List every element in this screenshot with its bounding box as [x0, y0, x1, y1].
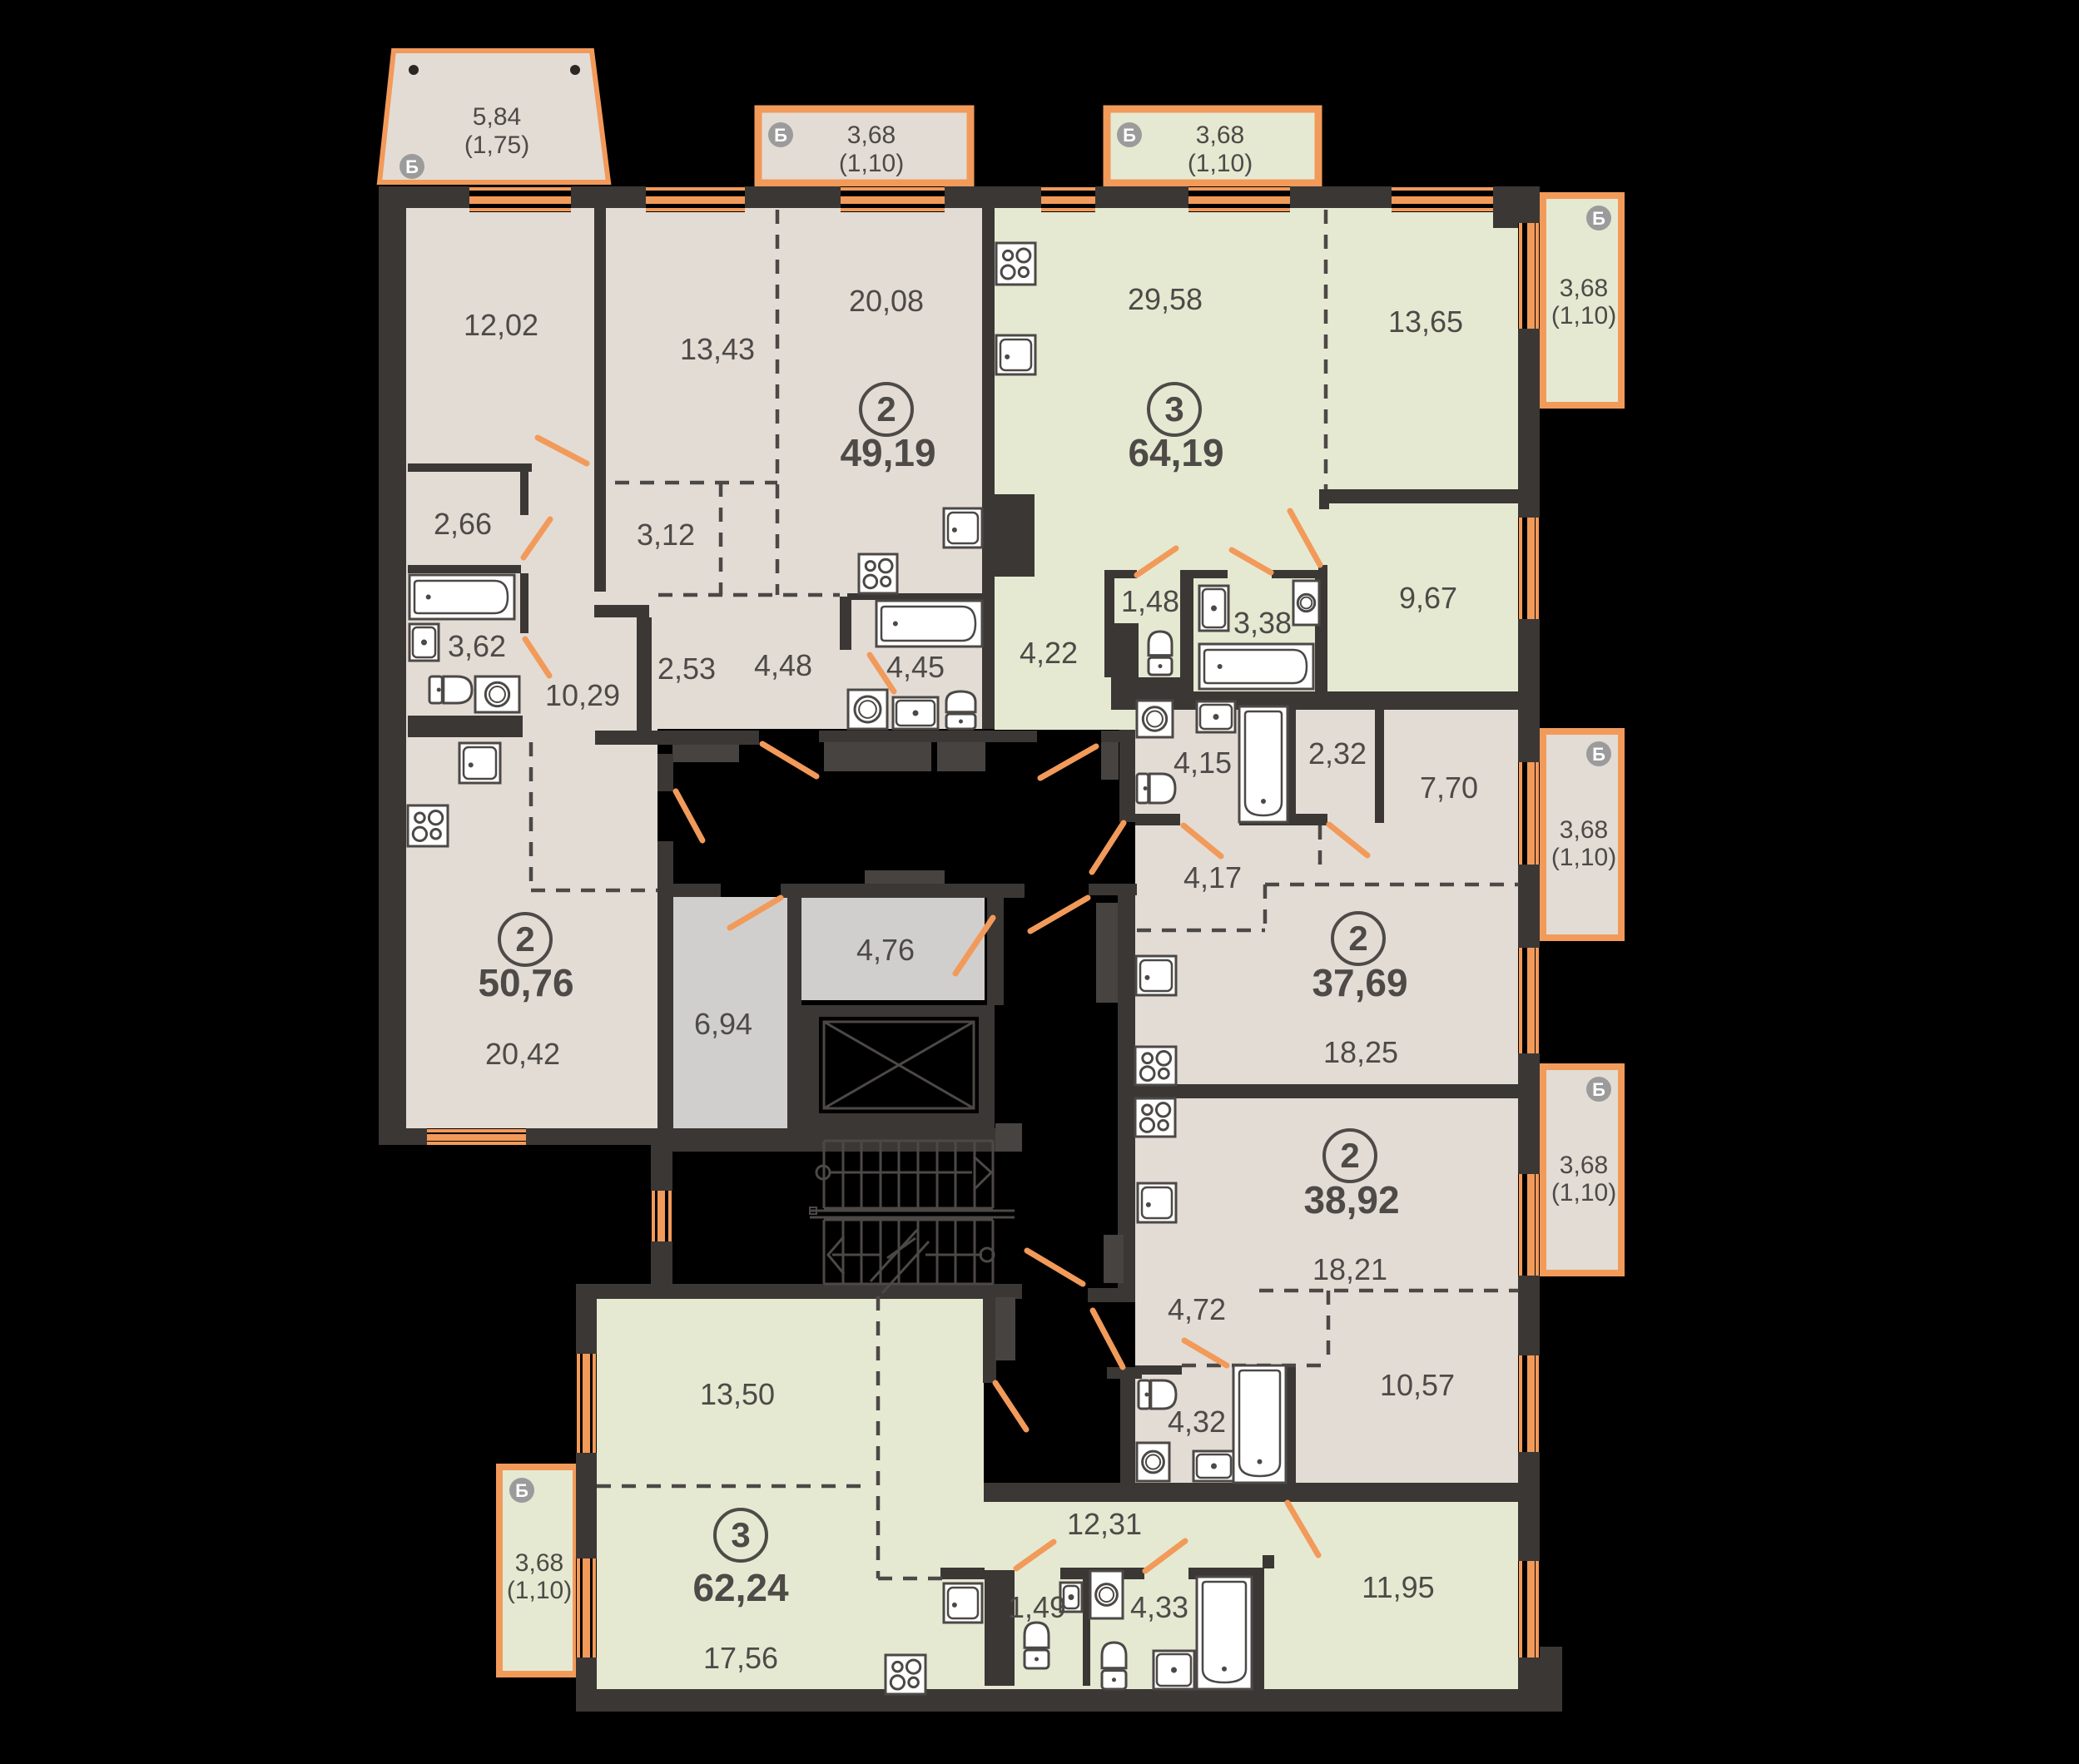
- svg-text:10,29: 10,29: [545, 678, 620, 712]
- svg-text:13,50: 13,50: [700, 1377, 775, 1411]
- svg-text:2: 2: [515, 919, 534, 959]
- svg-text:4,32: 4,32: [1168, 1405, 1226, 1439]
- svg-text:(1,10): (1,10): [839, 150, 904, 177]
- svg-text:2,66: 2,66: [434, 507, 492, 541]
- svg-text:18,25: 18,25: [1323, 1035, 1398, 1069]
- svg-text:1,48: 1,48: [1121, 584, 1179, 618]
- svg-text:37,69: 37,69: [1312, 961, 1407, 1004]
- svg-text:4,76: 4,76: [856, 933, 915, 967]
- svg-text:4,45: 4,45: [886, 650, 945, 684]
- svg-text:3,68: 3,68: [1560, 816, 1608, 844]
- svg-text:7,70: 7,70: [1420, 771, 1478, 805]
- svg-text:38,92: 38,92: [1303, 1178, 1399, 1221]
- svg-text:9,67: 9,67: [1399, 581, 1457, 615]
- svg-text:3,68: 3,68: [847, 121, 896, 149]
- svg-text:4,17: 4,17: [1183, 860, 1242, 894]
- svg-text:Б: Б: [1123, 125, 1136, 146]
- svg-text:62,24: 62,24: [692, 1566, 789, 1609]
- svg-text:(1,10): (1,10): [1551, 1179, 1616, 1207]
- svg-text:1,49: 1,49: [1008, 1590, 1066, 1624]
- svg-text:12,31: 12,31: [1067, 1507, 1142, 1541]
- svg-text:4,48: 4,48: [754, 648, 812, 682]
- svg-text:2: 2: [876, 389, 896, 429]
- svg-text:4,22: 4,22: [1020, 636, 1078, 670]
- svg-text:49,19: 49,19: [840, 431, 935, 474]
- svg-text:2,53: 2,53: [657, 652, 716, 686]
- svg-text:2: 2: [1348, 919, 1367, 958]
- svg-text:4,72: 4,72: [1168, 1292, 1226, 1326]
- svg-text:18,21: 18,21: [1312, 1252, 1387, 1286]
- svg-text:13,43: 13,43: [680, 332, 755, 366]
- svg-text:(1,10): (1,10): [1551, 844, 1616, 871]
- svg-text:4,15: 4,15: [1173, 746, 1232, 780]
- svg-text:3: 3: [1164, 389, 1183, 429]
- svg-text:(1,10): (1,10): [1188, 150, 1253, 177]
- svg-text:3,12: 3,12: [637, 518, 695, 552]
- svg-text:3,68: 3,68: [1560, 1152, 1608, 1179]
- svg-text:3,38: 3,38: [1233, 606, 1292, 640]
- svg-text:Б: Б: [1592, 744, 1605, 765]
- svg-text:(1,10): (1,10): [1551, 302, 1616, 330]
- svg-text:3: 3: [731, 1515, 750, 1554]
- svg-text:Б: Б: [1592, 1079, 1605, 1100]
- svg-text:Б: Б: [405, 156, 419, 177]
- svg-text:50,76: 50,76: [478, 961, 573, 1004]
- svg-text:3,62: 3,62: [448, 629, 506, 663]
- svg-text:12,02: 12,02: [464, 308, 538, 342]
- svg-text:3,68: 3,68: [1196, 121, 1244, 149]
- svg-text:4,33: 4,33: [1130, 1590, 1188, 1624]
- svg-text:5,84: 5,84: [473, 103, 521, 131]
- svg-text:13,65: 13,65: [1388, 305, 1463, 339]
- svg-text:Б: Б: [515, 1480, 528, 1501]
- svg-text:29,58: 29,58: [1128, 282, 1203, 316]
- svg-text:2: 2: [1340, 1136, 1359, 1175]
- svg-text:(1,10): (1,10): [507, 1577, 572, 1604]
- svg-text:20,08: 20,08: [849, 284, 924, 318]
- svg-text:10,57: 10,57: [1380, 1368, 1455, 1402]
- svg-text:2,32: 2,32: [1308, 736, 1367, 771]
- svg-text:64,19: 64,19: [1128, 431, 1223, 474]
- svg-text:3,68: 3,68: [515, 1549, 563, 1577]
- svg-text:6,94: 6,94: [694, 1007, 752, 1041]
- svg-text:3,68: 3,68: [1560, 275, 1608, 302]
- svg-text:20,42: 20,42: [485, 1037, 560, 1071]
- svg-text:11,95: 11,95: [1362, 1570, 1434, 1604]
- svg-text:17,56: 17,56: [703, 1641, 778, 1675]
- svg-text:(1,75): (1,75): [464, 131, 529, 159]
- svg-text:Б: Б: [1592, 208, 1605, 229]
- svg-text:Б: Б: [774, 125, 787, 146]
